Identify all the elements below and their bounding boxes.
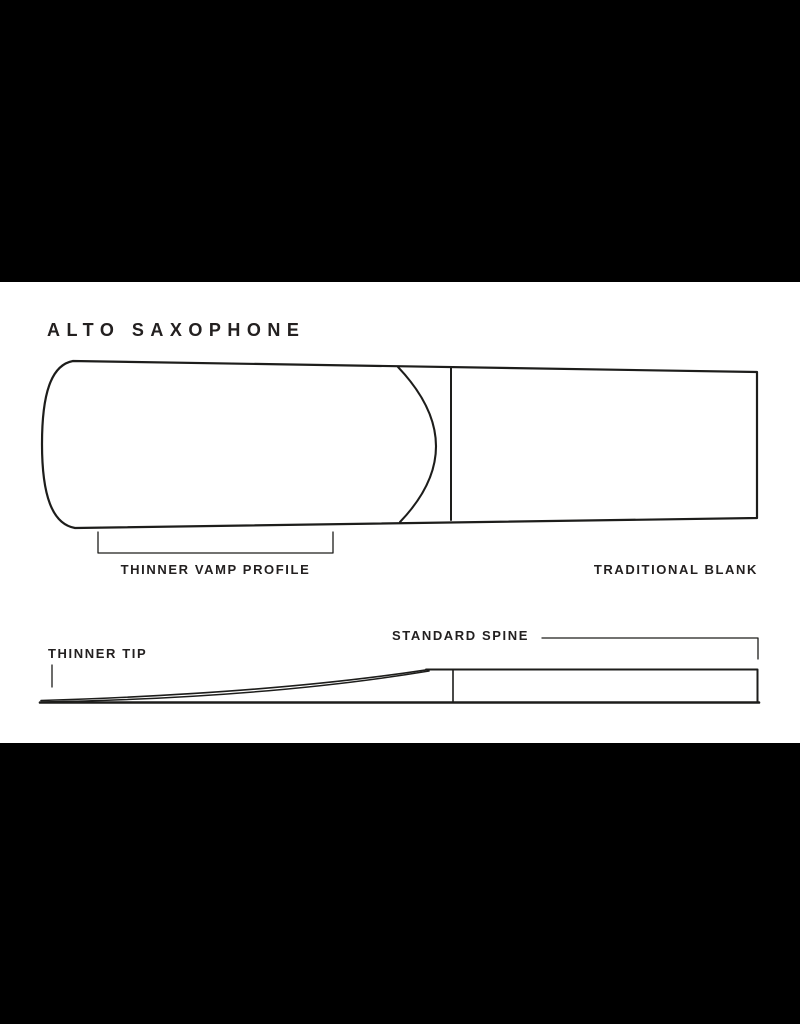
label-traditional-blank: TRADITIONAL BLANK bbox=[500, 562, 758, 577]
label-thinner-vamp-profile: THINNER VAMP PROFILE bbox=[93, 562, 338, 577]
side-view-vamp-slope-upper bbox=[41, 670, 427, 701]
reed-diagram-image: ALTO SAXOPHONE THINNER VAMP PROFILE TRAD… bbox=[0, 0, 800, 1024]
diagram-title: ALTO SAXOPHONE bbox=[47, 320, 305, 341]
vamp-arc bbox=[398, 367, 436, 522]
label-standard-spine: STANDARD SPINE bbox=[392, 628, 529, 643]
vamp-bracket bbox=[98, 532, 333, 553]
side-view-vamp-slope-lower bbox=[41, 671, 429, 702]
side-view-spine-top bbox=[426, 670, 758, 703]
reed-top-view-outline bbox=[42, 361, 757, 528]
reed-line-art bbox=[0, 0, 800, 1024]
label-thinner-tip: THINNER TIP bbox=[48, 646, 147, 661]
spine-pointer-line bbox=[542, 638, 758, 659]
